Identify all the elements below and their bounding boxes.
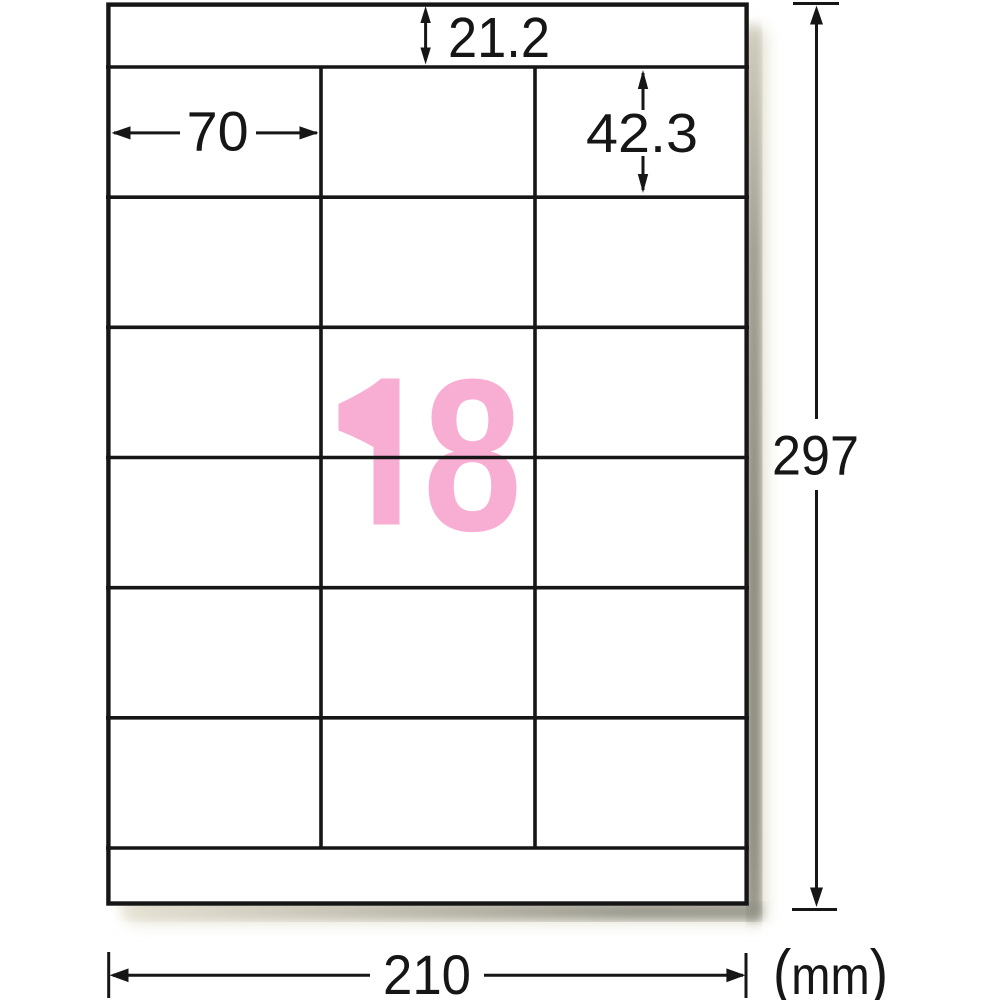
svg-text:210: 210 bbox=[383, 944, 471, 1000]
svg-text:42.3: 42.3 bbox=[586, 102, 698, 164]
svg-text:(mm): (mm) bbox=[773, 938, 888, 1000]
svg-text:21.2: 21.2 bbox=[448, 6, 550, 70]
svg-text:297: 297 bbox=[772, 423, 859, 486]
svg-text:8: 8 bbox=[423, 334, 522, 577]
svg-text:70: 70 bbox=[187, 100, 249, 162]
